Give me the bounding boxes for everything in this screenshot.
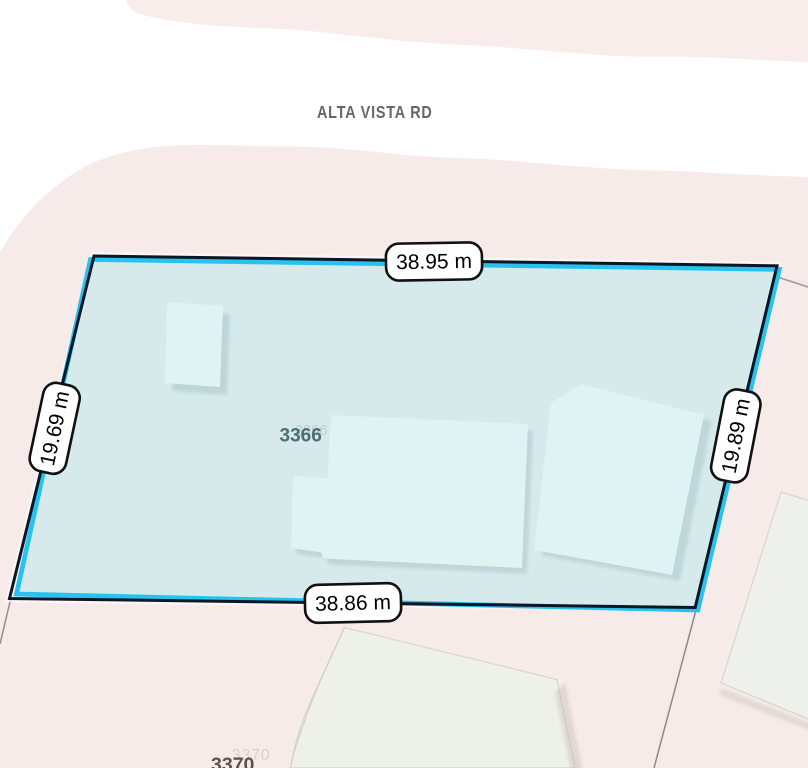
- svg-text:3370: 3370: [211, 754, 255, 768]
- svg-text:ALTA VISTA RD: ALTA VISTA RD: [317, 103, 433, 123]
- svg-text:3366: 3366: [280, 426, 322, 447]
- svg-text:38.95 m: 38.95 m: [396, 250, 472, 274]
- svg-text:38.86 m: 38.86 m: [315, 591, 391, 616]
